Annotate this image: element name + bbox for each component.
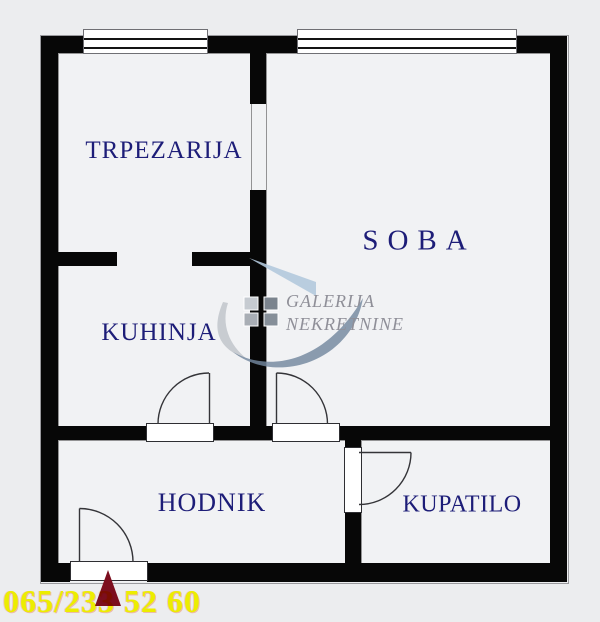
room-label-hallway: HODNIK bbox=[158, 488, 267, 518]
wall-divider-upper bbox=[250, 53, 266, 104]
floor-plan: GALERIJA NEKRETNINE TRPEZARIJA SOBA KUHI… bbox=[0, 0, 600, 622]
window-room bbox=[297, 29, 517, 54]
watermark-agency-line1: GALERIJA bbox=[286, 291, 375, 312]
wall-kitchen-stub-right bbox=[192, 252, 250, 266]
kitchen-door-threshold bbox=[146, 423, 214, 442]
wall-divider-lower bbox=[250, 190, 266, 427]
room-label-bathroom: KUPATILO bbox=[402, 492, 521, 519]
wall-kitchen-stub-left bbox=[58, 252, 117, 266]
bathroom-door-threshold bbox=[344, 447, 362, 513]
dining-kitchen-edge bbox=[58, 53, 252, 428]
wall-middle-b bbox=[214, 426, 272, 440]
wall-right bbox=[550, 36, 567, 582]
wall-top-middle bbox=[208, 36, 297, 53]
wall-bottom-right bbox=[147, 563, 567, 582]
watermark-agency-line2: NEKRETNINE bbox=[286, 314, 404, 335]
room-label-room: SOBA bbox=[362, 225, 475, 258]
wall-middle-a bbox=[58, 426, 146, 440]
phone-number: 065/233 52 60 bbox=[3, 583, 201, 620]
room-label-dining: TRPEZARIJA bbox=[85, 137, 242, 165]
wall-bathroom-lower bbox=[345, 512, 361, 563]
entry-door-threshold bbox=[70, 561, 148, 581]
room-door-threshold bbox=[272, 423, 340, 442]
wall-middle-c bbox=[340, 426, 550, 440]
room-label-kitchen: KUHINJA bbox=[101, 319, 216, 347]
window-dining bbox=[83, 29, 208, 54]
wall-bottom-left bbox=[41, 563, 70, 582]
wall-left bbox=[41, 36, 58, 582]
